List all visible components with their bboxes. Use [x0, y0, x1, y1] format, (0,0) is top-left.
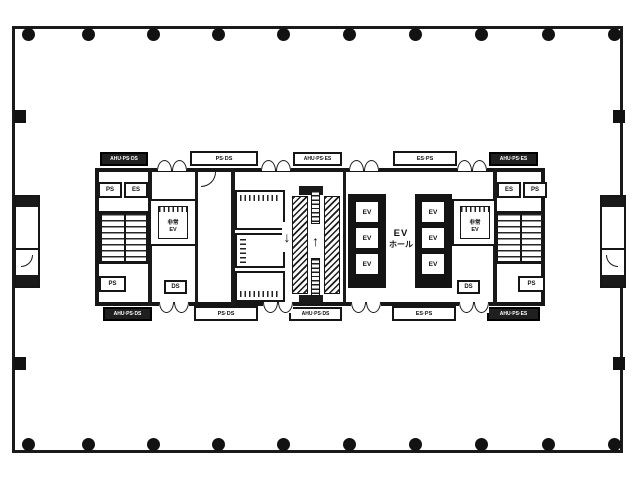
wall-pilaster-icon — [613, 110, 625, 123]
ev-hall-label-line2: ホール — [389, 240, 413, 249]
machinery-hatch — [461, 207, 489, 212]
double-door-icon — [459, 302, 489, 313]
side-bay-right — [600, 195, 626, 288]
column-icon — [212, 28, 225, 41]
escalator-down-arrow-icon: ↓ — [282, 222, 292, 252]
side-bay-divider — [602, 248, 624, 250]
elevator-cell: EV — [355, 253, 379, 275]
emergency-elevator-cab: 非常 EV — [158, 206, 188, 239]
restroom-upper — [235, 190, 285, 230]
column-icon — [343, 28, 356, 41]
escalator-cap — [299, 295, 323, 304]
double-door-icon — [159, 302, 189, 313]
elevator-cell: EV — [421, 201, 445, 223]
restroom-lower — [235, 271, 285, 302]
ev-hall-label-line1: EV — [394, 229, 409, 240]
shaft-label: AHU·PS·ES — [487, 307, 540, 321]
ev-hall-label: EV ホール — [384, 224, 418, 254]
shaft-room-ps: PS — [98, 182, 122, 198]
column-icon — [147, 28, 160, 41]
column-icon — [212, 438, 225, 451]
side-bay-cap — [16, 197, 38, 207]
elevator-cell: EV — [421, 227, 445, 249]
column-icon — [277, 28, 290, 41]
fixture-row — [240, 195, 280, 201]
escalator-divider — [311, 258, 320, 296]
shaft-label: AHU·PS·DS — [100, 152, 148, 166]
shaft-label: ES·PS — [392, 306, 456, 321]
side-bay-cap — [602, 275, 624, 286]
escalator-bank-left — [292, 196, 308, 294]
emergency-elevator-right: 非常 EV — [452, 199, 496, 246]
column-icon — [22, 28, 35, 41]
shaft-label: PS·DS — [190, 151, 258, 166]
column-icon — [608, 438, 621, 451]
staircase-right — [495, 211, 545, 264]
shaft-label: AHU·PS·ES — [293, 152, 342, 166]
duct-box-ds: DS — [164, 280, 187, 294]
duct-box-ds: DS — [457, 280, 480, 294]
emergency-elevator-cab: 非常 EV — [460, 206, 490, 239]
escalator-divider — [311, 190, 320, 224]
elevator-bank-left: EV EV EV — [348, 194, 386, 288]
column-icon — [147, 438, 160, 451]
wall-pilaster-icon — [14, 357, 26, 370]
double-door-icon — [261, 160, 291, 171]
escalator-up-arrow-icon: ↑ — [310, 226, 321, 256]
emergency-elevator-left: 非常 EV — [149, 199, 197, 246]
shaft-label: PS·DS — [194, 306, 258, 321]
column-icon — [409, 28, 422, 41]
double-door-icon — [457, 160, 487, 171]
shaft-room-es: ES — [124, 182, 148, 198]
escalator-bank-right — [324, 196, 340, 294]
shaft-label: AHU·PS·DS — [289, 307, 342, 321]
column-icon — [22, 438, 35, 451]
column-icon — [82, 28, 95, 41]
column-icon — [608, 28, 621, 41]
machinery-hatch — [159, 207, 187, 212]
wall-pilaster-icon — [613, 357, 625, 370]
emergency-elevator-label: EV — [169, 227, 176, 233]
fixture-row — [240, 291, 280, 297]
column-icon — [542, 438, 555, 451]
shaft-room-ps: PS — [518, 276, 545, 292]
floor-plan-canvas: AHU·PS·DS PS·DS AHU·PS·ES ES·PS AHU·PS·E… — [0, 0, 640, 480]
elevator-cell: EV — [421, 253, 445, 275]
double-door-icon — [351, 302, 381, 313]
restroom-middle — [235, 233, 285, 268]
shaft-room-ps: PS — [523, 182, 547, 198]
shaft-label: AHU·PS·DS — [103, 307, 152, 321]
fixture-row — [240, 239, 246, 263]
column-icon — [542, 28, 555, 41]
column-icon — [343, 438, 356, 451]
double-door-icon — [349, 160, 379, 171]
shaft-label: AHU·PS·ES — [489, 152, 538, 166]
column-icon — [475, 28, 488, 41]
double-door-icon — [157, 160, 187, 171]
emergency-elevator-label: EV — [471, 227, 478, 233]
column-icon — [475, 438, 488, 451]
core-partition — [343, 168, 346, 306]
elevator-cell: EV — [355, 201, 379, 223]
elevator-bank-right: EV EV EV — [415, 194, 452, 288]
side-bay-divider — [16, 248, 38, 250]
wall-pilaster-icon — [14, 110, 26, 123]
side-bay-cap — [16, 275, 38, 286]
shaft-room-es: ES — [497, 182, 521, 198]
door-swing-icon — [606, 255, 618, 267]
column-icon — [82, 438, 95, 451]
side-bay-left — [14, 195, 40, 288]
column-icon — [277, 438, 290, 451]
double-door-icon — [263, 302, 293, 313]
shaft-label: ES·PS — [393, 151, 457, 166]
door-swing-icon — [21, 255, 33, 267]
side-bay-cap — [602, 197, 624, 207]
shaft-room-ps: PS — [99, 276, 126, 292]
staircase-left — [99, 211, 149, 264]
column-icon — [409, 438, 422, 451]
elevator-cell: EV — [355, 227, 379, 249]
